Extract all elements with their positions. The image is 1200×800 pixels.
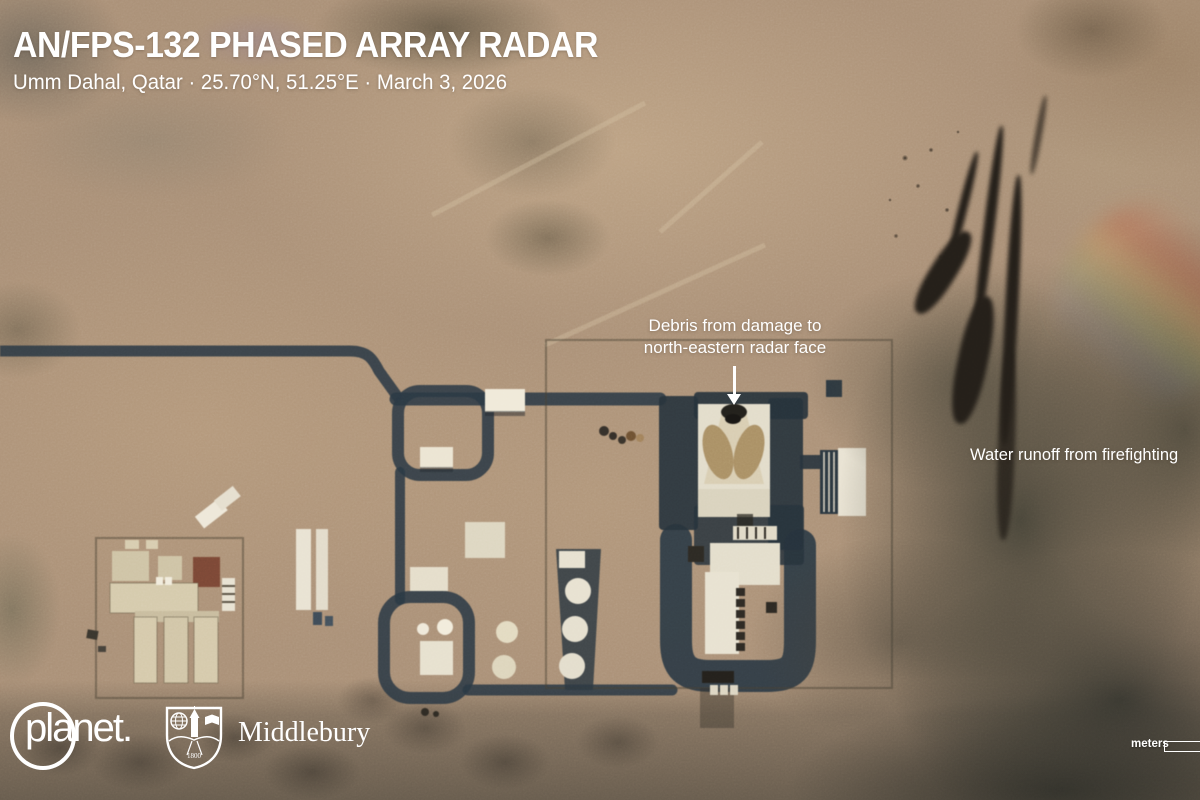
shield-year-label: 1800 <box>187 752 202 760</box>
debris-annotation: Debris from damage to north-eastern rada… <box>615 315 855 359</box>
debris-annotation-line2: north-eastern radar face <box>615 337 855 359</box>
title-block: AN/FPS-132 PHASED ARRAY RADAR Umm Dahal,… <box>13 24 635 95</box>
middlebury-shield-icon: 1800 <box>163 705 225 771</box>
debris-arrow-head-icon <box>727 394 741 405</box>
scale-bar <box>1164 741 1200 752</box>
water-runoff-annotation: Water runoff from firefighting <box>970 446 1178 465</box>
page-title: AN/FPS-132 PHASED ARRAY RADAR <box>13 24 598 66</box>
soot-spatter <box>0 0 1200 800</box>
debris-arrow-line <box>733 366 736 396</box>
debris-annotation-line1: Debris from damage to <box>615 315 855 337</box>
annotated-satellite-image: AN/FPS-132 PHASED ARRAY RADAR Umm Dahal,… <box>0 0 1200 800</box>
middlebury-wordmark: Middlebury <box>238 717 370 749</box>
planet-wordmark: planet. <box>25 706 131 751</box>
location-date-subtitle: Umm Dahal, Qatar · 25.70°N, 51.25°E · Ma… <box>13 71 617 95</box>
